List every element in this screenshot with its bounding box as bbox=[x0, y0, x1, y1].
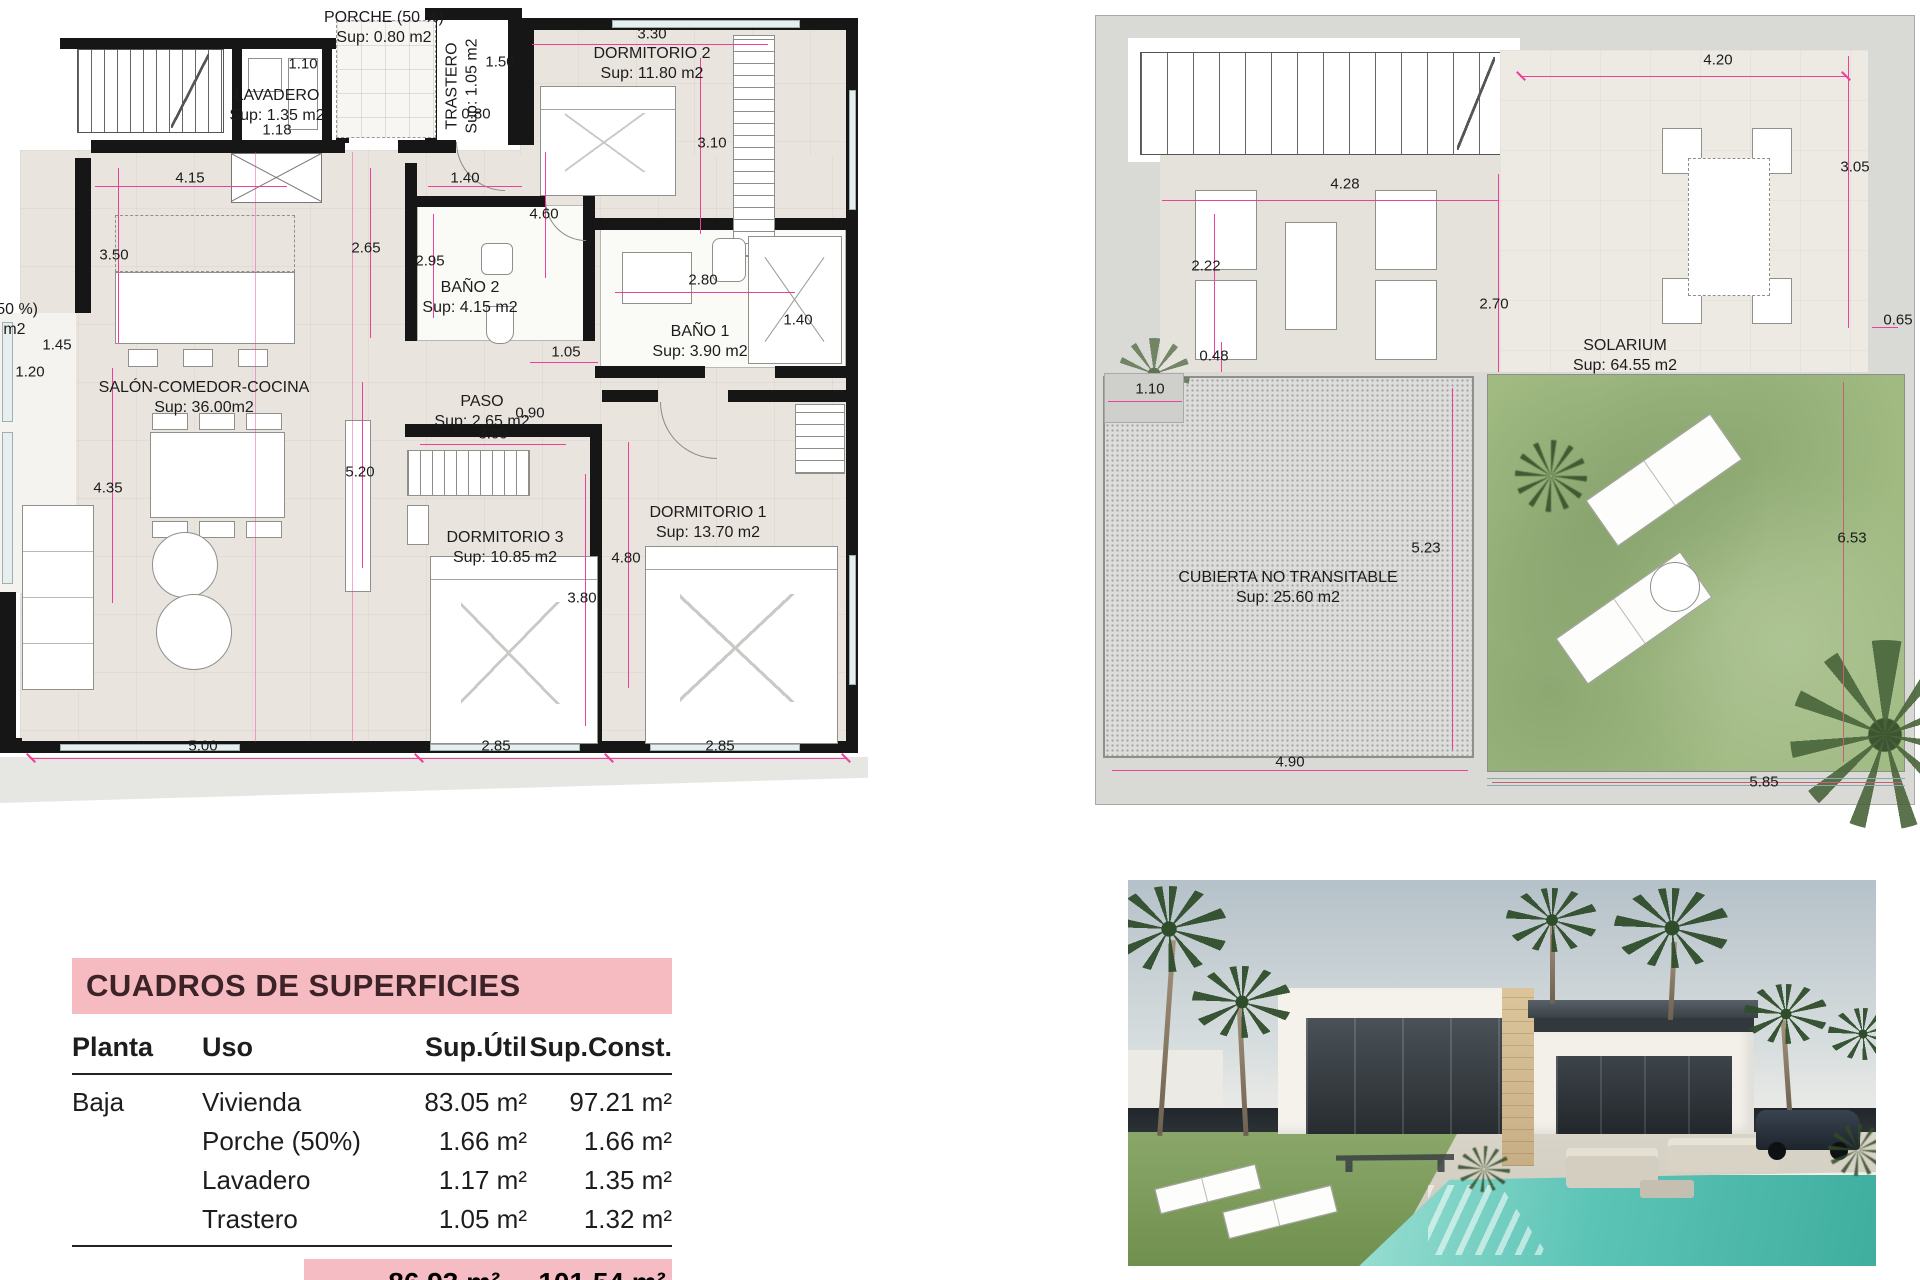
cell-const: 1.35 m² bbox=[527, 1165, 672, 1196]
cell-const: 1.32 m² bbox=[527, 1204, 672, 1235]
bush bbox=[1458, 1146, 1510, 1192]
room-label: DORMITORIO 2Sup: 11.80 m2 bbox=[593, 44, 710, 83]
villa-right-glass bbox=[1556, 1056, 1732, 1134]
dimension-label: 1.45 bbox=[39, 337, 74, 354]
dimension-label: 4.28 bbox=[1327, 176, 1362, 193]
dimension-label: 0.48 bbox=[1196, 348, 1231, 365]
cell-uso: Lavadero bbox=[202, 1165, 392, 1196]
cell-uso: Trastero bbox=[202, 1204, 392, 1235]
palm-crown bbox=[1128, 886, 1228, 972]
total-band: 86.93 m² 101.54 m² bbox=[304, 1259, 672, 1280]
dimension-label: 2.85 bbox=[702, 738, 737, 755]
dimension-label: 1.10 bbox=[1132, 381, 1167, 398]
dimension-label: 4.35 bbox=[90, 480, 125, 497]
cell-planta bbox=[72, 1165, 202, 1196]
dimension-label: 5.00 bbox=[185, 738, 220, 755]
cell-util: 83.05 m² bbox=[392, 1087, 527, 1118]
col-header-sup-util: Sup.Útil bbox=[392, 1032, 527, 1063]
palm-crown bbox=[1828, 1008, 1876, 1060]
table-rule bbox=[72, 1245, 672, 1247]
room-label: SOLARIUMSup: 64.55 m2 bbox=[1573, 336, 1677, 375]
villa-photo bbox=[1128, 880, 1876, 1266]
dimension-label: 1.50 bbox=[482, 54, 517, 71]
architectural-plan-sheet: PORCHE (50 %)Sup: 0.80 m2LAVADEROSup: 1.… bbox=[0, 0, 1920, 1280]
coffee-table bbox=[1640, 1180, 1694, 1198]
dimension-label: 3.00 bbox=[475, 426, 510, 443]
dimension-label: 1.18 bbox=[259, 122, 294, 139]
col-header-planta: Planta bbox=[72, 1032, 202, 1063]
total-sup-const: 101.54 m² bbox=[538, 1267, 666, 1280]
palm-crown bbox=[1192, 966, 1292, 1038]
car-wheel bbox=[1768, 1142, 1786, 1160]
dimension-label: 2.80 bbox=[685, 272, 720, 289]
room-label: SALÓN-COMEDOR-COCINASup: 36.00m2 bbox=[99, 378, 310, 417]
dimension-label: 0.90 bbox=[512, 405, 547, 422]
cell-util: 1.17 m² bbox=[392, 1165, 527, 1196]
cell-planta: Baja bbox=[72, 1087, 202, 1118]
dimension-label: 4.20 bbox=[1700, 52, 1735, 69]
dimension-label: 2.70 bbox=[1476, 296, 1511, 313]
palm-crown bbox=[1614, 888, 1730, 968]
dimension-label: 1.05 bbox=[548, 344, 583, 361]
dimension-label: 3.80 bbox=[564, 590, 599, 607]
palm-crown bbox=[1744, 984, 1828, 1044]
table-rule bbox=[72, 1073, 672, 1075]
dimension-label: 1.40 bbox=[447, 170, 482, 187]
dimension-label: 3.50 bbox=[96, 247, 131, 264]
col-header-sup-const: Sup.Const. bbox=[527, 1032, 672, 1063]
dimension-label: 5.85 bbox=[1746, 774, 1781, 791]
dimension-label: 0.80 bbox=[458, 106, 493, 123]
dimension-label: 1.10 bbox=[285, 56, 320, 73]
dimension-label: 3.30 bbox=[634, 26, 669, 43]
room-label: DORMITORIO 1Sup: 13.70 m2 bbox=[649, 503, 766, 542]
surface-table: CUADROS DE SUPERFICIES Planta Uso Sup.Út… bbox=[72, 958, 672, 1280]
room-label: CUBIERTA NO TRANSITABLESup: 25.60 m2 bbox=[1178, 568, 1397, 607]
room-label: LAVADEROSup: 1.35 m2 bbox=[229, 86, 324, 125]
dimension-label: 6.53 bbox=[1834, 530, 1869, 547]
dimension-label: 4.15 bbox=[172, 170, 207, 187]
room-label: PORCHE (50 %)Sup: 0.80 m2 bbox=[324, 8, 444, 47]
cell-util: 1.05 m² bbox=[392, 1204, 527, 1235]
palm-crown bbox=[1506, 888, 1598, 952]
cell-util: 1.66 m² bbox=[392, 1126, 527, 1157]
cell-const: 97.21 m² bbox=[527, 1087, 672, 1118]
cell-uso: Vivienda bbox=[202, 1087, 392, 1118]
dimension-label: 4.90 bbox=[1272, 754, 1307, 771]
dimension-label: 4.60 bbox=[526, 206, 561, 223]
dimension-label: 0.65 bbox=[1880, 312, 1915, 329]
villa-left-glass bbox=[1306, 1018, 1502, 1134]
surface-table-title: CUADROS DE SUPERFICIES bbox=[72, 958, 672, 1014]
room-label: DORMITORIO 3Sup: 10.85 m2 bbox=[446, 528, 563, 567]
room-label: PORCHE (50 %)Sup: 0.86 m2 bbox=[0, 300, 38, 339]
dimension-label: 2.22 bbox=[1188, 258, 1223, 275]
dimension-label: 5.20 bbox=[342, 464, 377, 481]
cell-planta bbox=[72, 1204, 202, 1235]
roof-edge bbox=[1528, 1000, 1758, 1018]
cell-const: 1.66 m² bbox=[527, 1126, 672, 1157]
villa-right-roof bbox=[1534, 1018, 1754, 1032]
dimension-label: 3.05 bbox=[1837, 159, 1872, 176]
dimension-label: 2.65 bbox=[348, 240, 383, 257]
dimension-label: 4.80 bbox=[608, 550, 643, 567]
dimension-label: 2.95 bbox=[412, 253, 447, 270]
total-sup-util: 86.93 m² bbox=[388, 1267, 500, 1280]
dimension-label: 1.20 bbox=[12, 364, 47, 381]
dimension-label: 5.23 bbox=[1408, 540, 1443, 557]
cell-uso: Porche (50%) bbox=[202, 1126, 392, 1157]
dimension-label: 1.40 bbox=[780, 312, 815, 329]
dimension-label: 2.85 bbox=[478, 738, 513, 755]
dimension-label: 3.10 bbox=[694, 135, 729, 152]
room-label: BAÑO 1Sup: 3.90 m2 bbox=[652, 322, 747, 361]
room-label: BAÑO 2Sup: 4.15 m2 bbox=[422, 278, 517, 317]
col-header-uso: Uso bbox=[202, 1032, 392, 1063]
cell-planta bbox=[72, 1126, 202, 1157]
